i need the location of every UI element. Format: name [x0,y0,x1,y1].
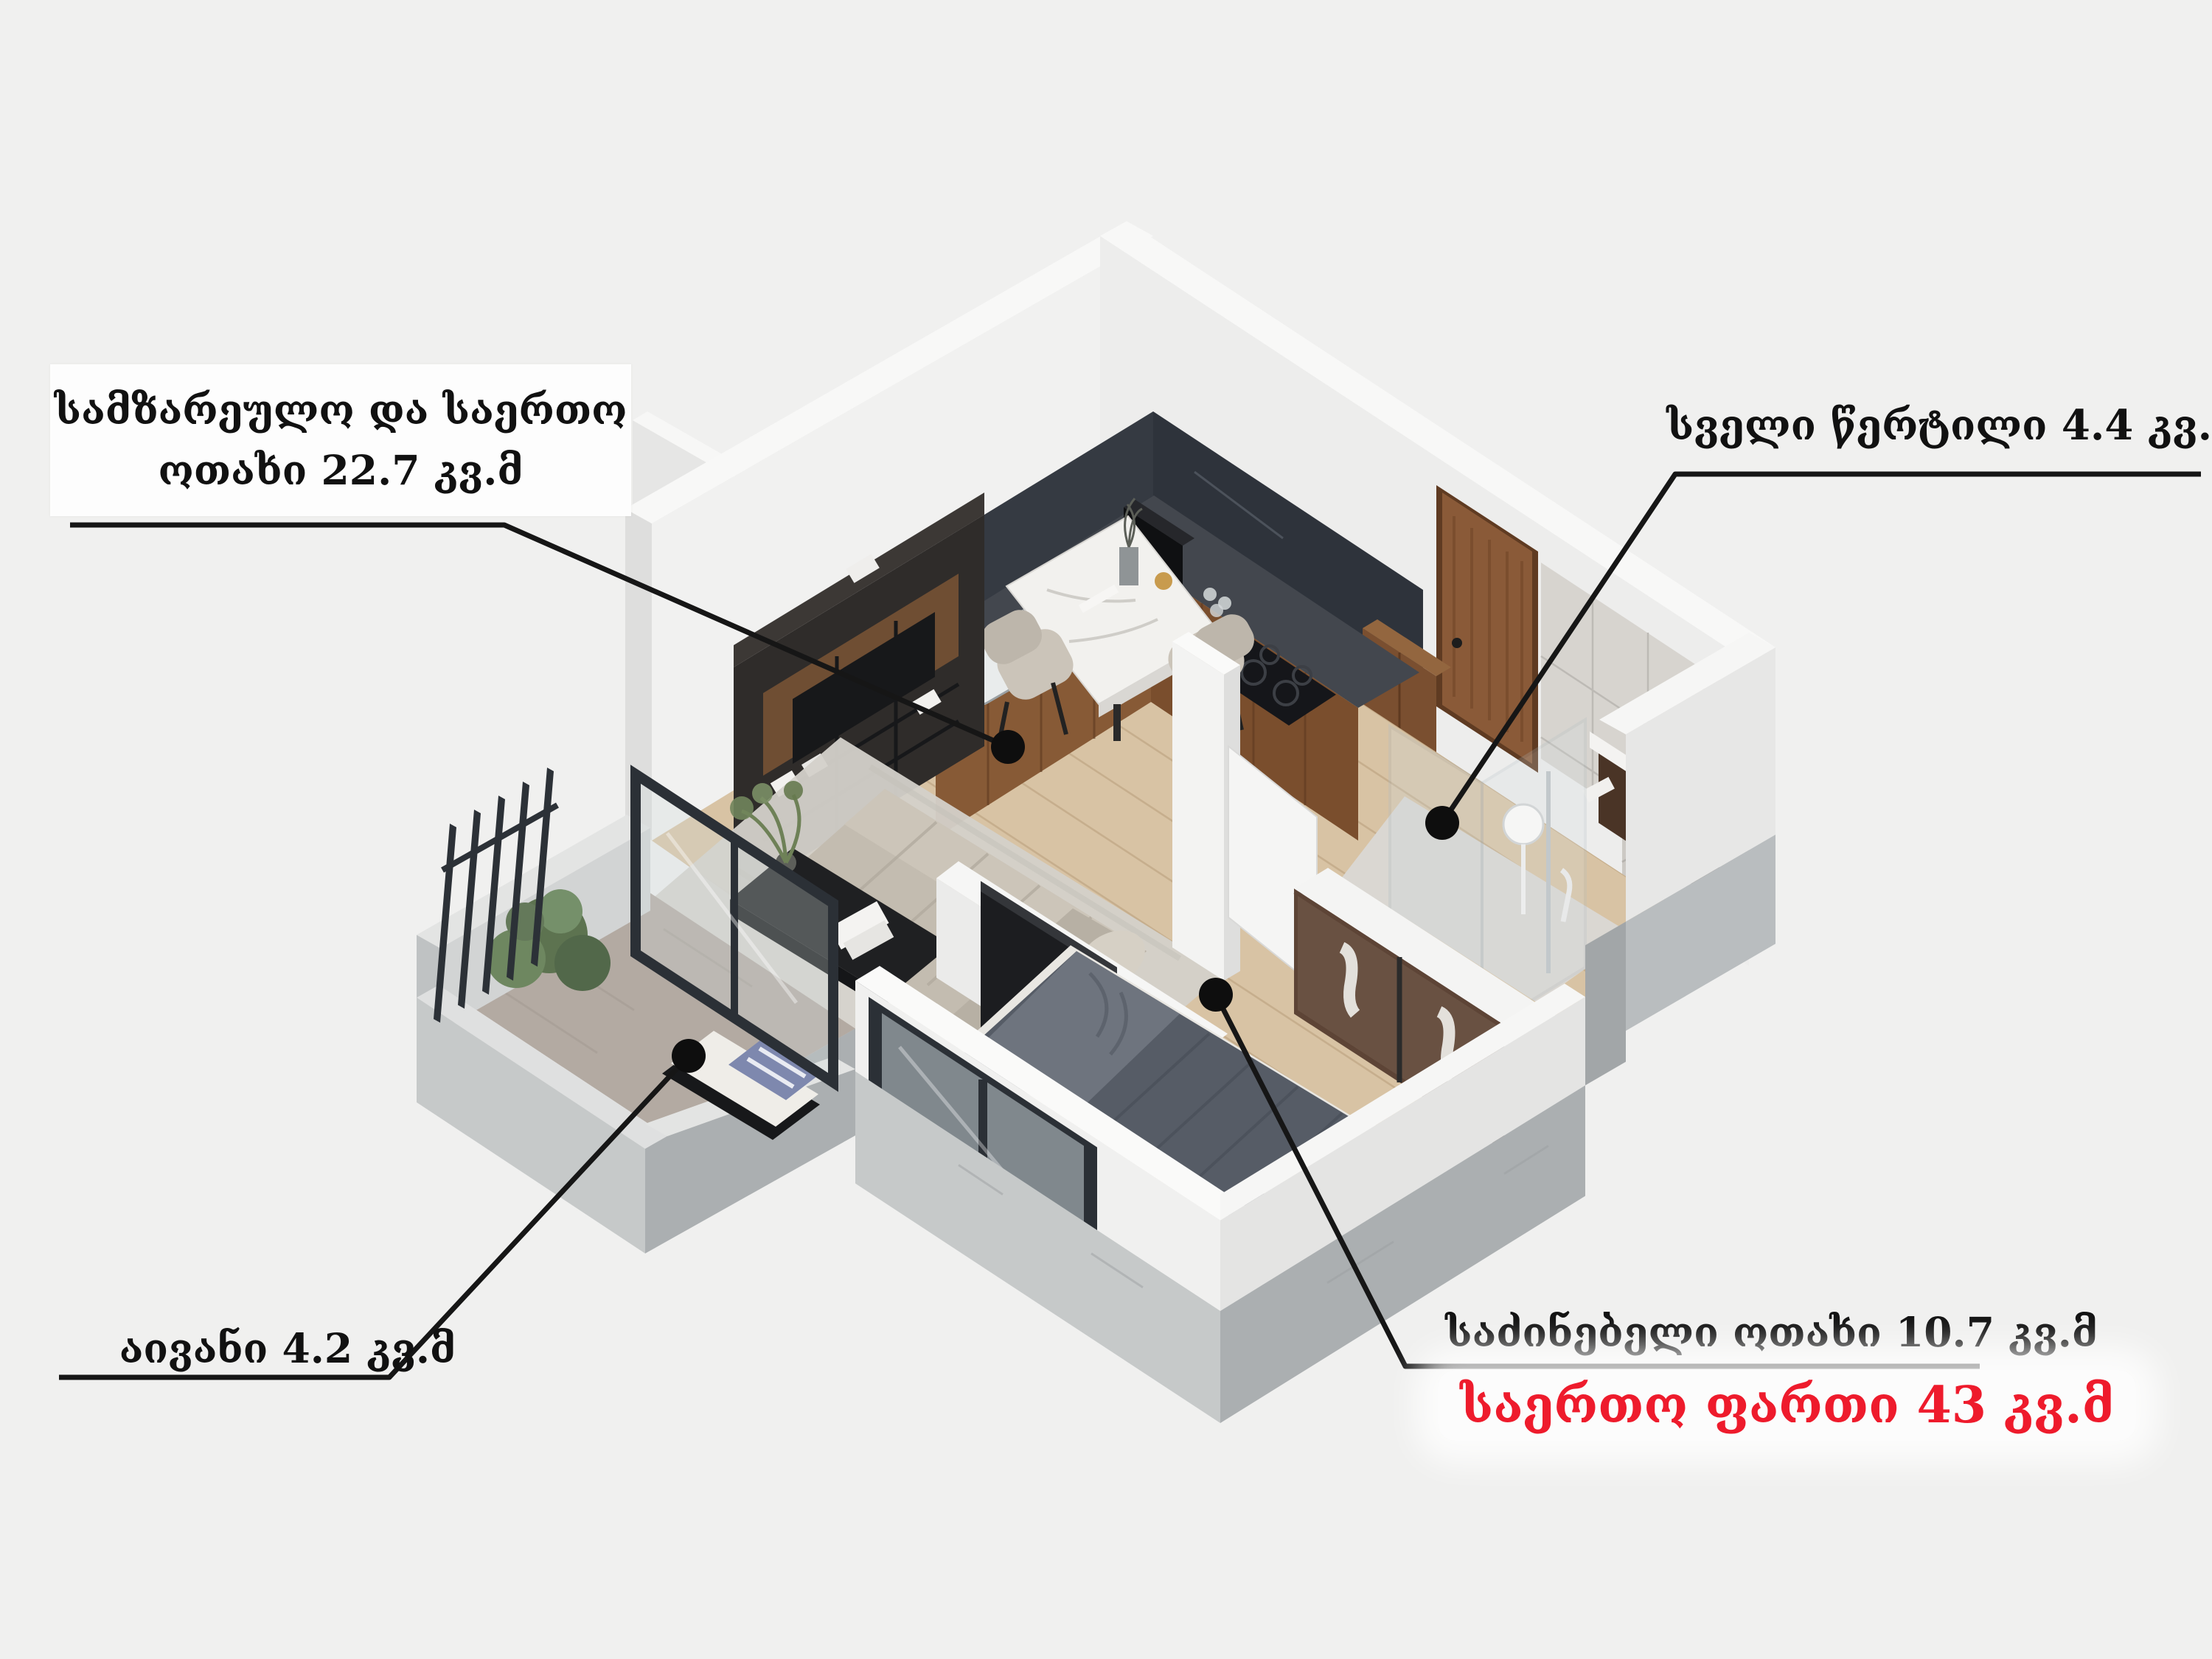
label-bedroom: საძინებელი ოთახი 10.7 კვ.მ [1445,1308,1961,1356]
dot-bedroom [1199,978,1233,1012]
label-total-area: საერთო ფართი 43 კვ.მ [1438,1370,2136,1441]
label-balcony: აივანი 4.2 კვ.მ [81,1324,494,1372]
floorplan-poster: სამზარეულო და საერთო ოთახი 22.7 კვ.მ სვე… [0,0,2212,1659]
label-living-kitchen-line1: სამზარეულო და საერთო [55,380,627,441]
dot-living [991,730,1025,764]
label-living-kitchen: სამზარეულო და საერთო ოთახი 22.7 კვ.მ [50,364,631,516]
dot-wet-point [1425,806,1459,840]
label-living-kitchen-line2: ოთახი 22.7 კვ.მ [158,440,523,501]
dot-balcony [672,1039,706,1073]
label-wet-point: სველი წერტილი 4.4 კვ.მ [1666,401,2190,450]
